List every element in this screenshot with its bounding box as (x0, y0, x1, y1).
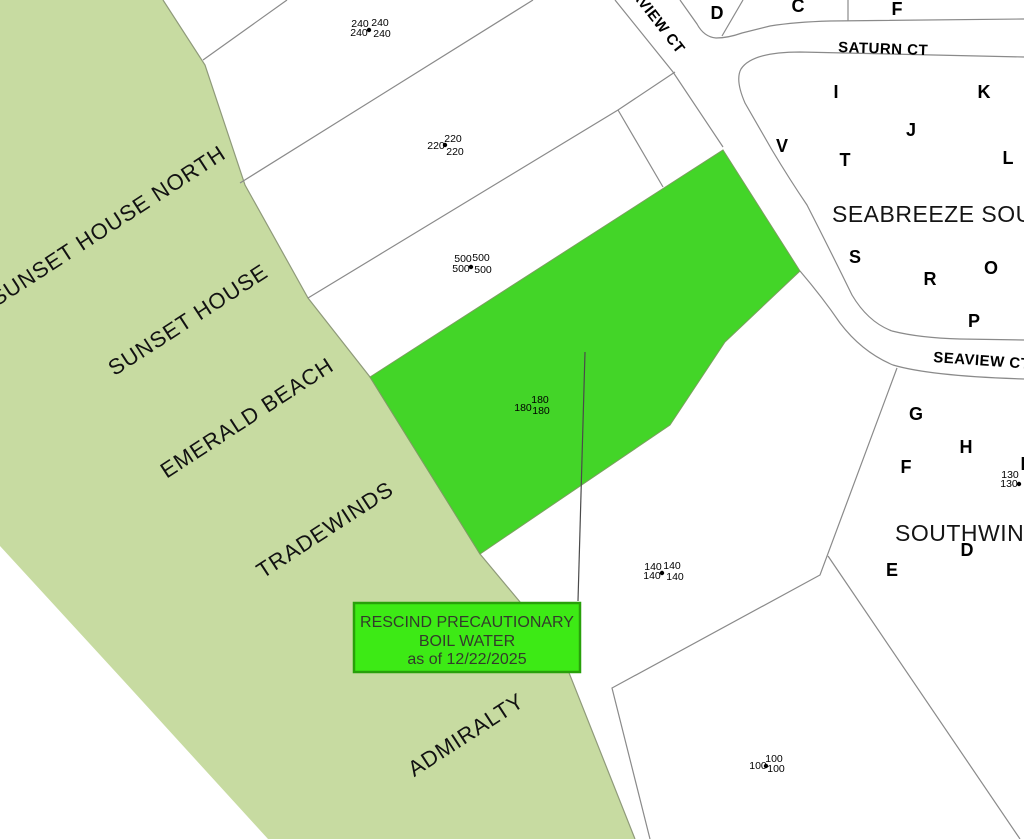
street-label-saturn-ct: SATURN CT (838, 39, 929, 59)
parcel-letter-k: K (978, 82, 991, 102)
subdivision-label-seabreeze-south: SEABREEZE SOUTH (832, 201, 1024, 227)
measurement-500: 500 (474, 264, 492, 276)
survey-point-marker (443, 143, 447, 147)
survey-point-marker (764, 764, 768, 768)
callout-line-1: RESCIND PRECAUTIONARY (360, 614, 574, 631)
parcel-letter-i: I (833, 82, 838, 102)
parcel-letter-c: C (792, 0, 805, 16)
parcel-letter-edge-partial: I (1020, 454, 1024, 474)
measurement-100: 100 (767, 763, 785, 775)
measurement-240: 240 (350, 27, 368, 39)
measurement-220: 220 (444, 133, 462, 145)
survey-point-marker (1017, 482, 1021, 486)
measurement-500: 500 (472, 252, 490, 264)
measurement-130: 130 (1000, 478, 1018, 490)
callout-line-3: as of 12/22/2025 (407, 651, 526, 668)
parcel-letter-e: E (886, 560, 898, 580)
parcel-letter-l: L (1003, 148, 1014, 168)
subdivision-label-southwinds: SOUTHWINDS (895, 520, 1024, 546)
measurement-140: 140 (666, 571, 684, 583)
lot-number: 180 (532, 405, 550, 417)
survey-point-marker (367, 28, 371, 32)
parcel-letter-p: P (968, 311, 980, 331)
parcel-letter-j: J (906, 120, 916, 140)
parcel-letter-v: V (776, 136, 788, 156)
parcel-letter-s: S (849, 247, 861, 267)
lot-number: 180 (514, 402, 532, 414)
parcel-letter-t: T (840, 150, 851, 170)
parcel-letter-g: G (909, 404, 923, 424)
parcel-letter-f2: F (901, 457, 912, 477)
parcel-letter-d: D (711, 3, 724, 23)
parcel-map: 180 180 180 SUNSET HOUSE NORTH SUNSET HO… (0, 0, 1024, 839)
measurement-220: 220 (427, 140, 445, 152)
parcel-letter-r: R (924, 269, 937, 289)
measurement-240: 240 (373, 28, 391, 40)
measurement-500: 500 (452, 263, 470, 275)
parcel-letter-h: H (960, 437, 973, 457)
parcel-letter-d2: D (961, 540, 974, 560)
parcel-letter-o: O (984, 258, 998, 278)
survey-point-marker (469, 265, 473, 269)
measurement-220: 220 (446, 146, 464, 158)
survey-point-marker (660, 571, 664, 575)
callout-line-2: BOIL WATER (419, 633, 515, 650)
measurement-140: 140 (643, 570, 661, 582)
parcel-map-canvas[interactable]: 180 180 180 SUNSET HOUSE NORTH SUNSET HO… (0, 0, 1024, 839)
parcel-letter-f-partial: F (892, 0, 903, 19)
